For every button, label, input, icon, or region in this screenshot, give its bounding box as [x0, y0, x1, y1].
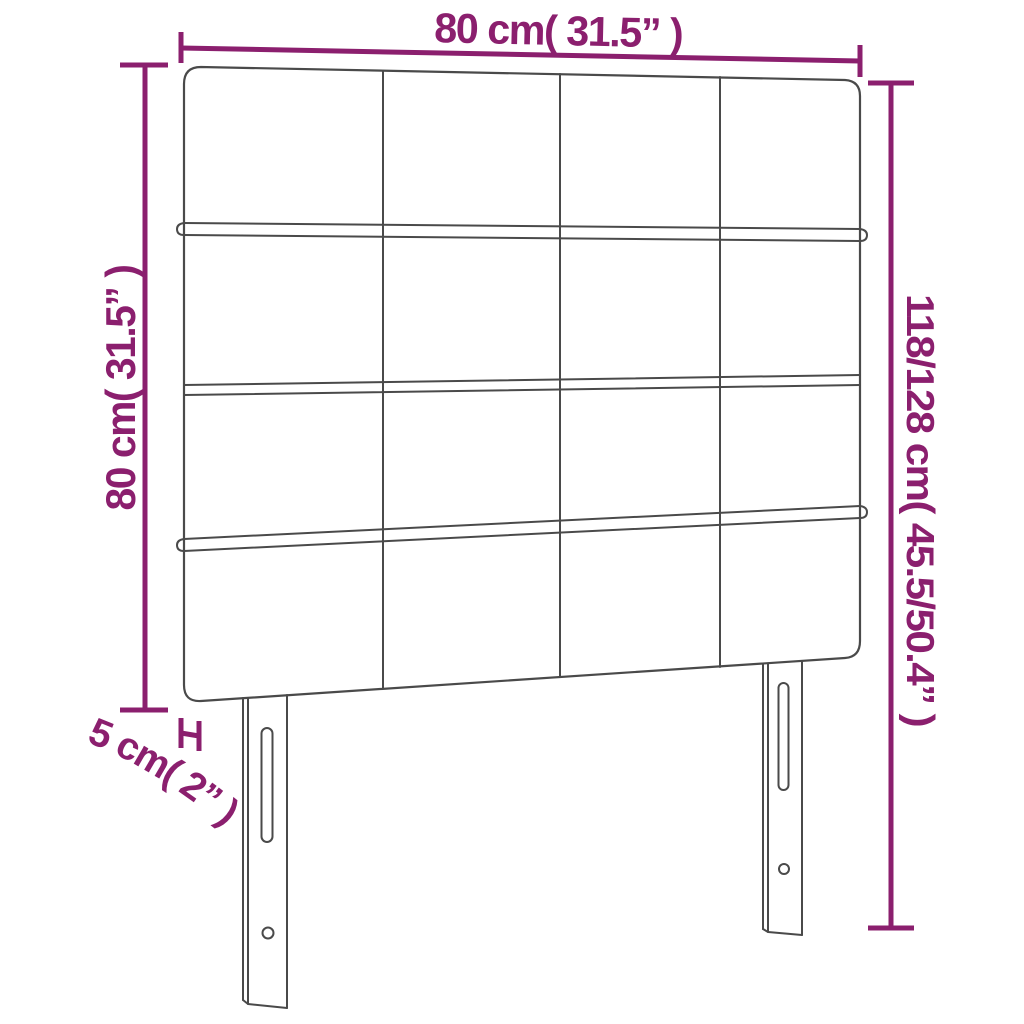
width-label: 80 cm( 31.5” ) — [434, 4, 683, 57]
headboard-height-label: 80 cm( 31.5” ) — [97, 266, 144, 511]
left-leg — [243, 695, 287, 1008]
left-leg-screw-hole — [263, 928, 274, 939]
dimension-labels: 80 cm( 31.5” ) 80 cm( 31.5” ) 118/128 cm… — [83, 4, 941, 848]
dimension-lines — [120, 32, 914, 928]
legs — [243, 662, 802, 1008]
row-seam-2-bottom — [184, 385, 860, 395]
thickness-label: 5 cm( 2” ) — [83, 710, 247, 833]
right-leg — [763, 662, 802, 935]
headboard — [177, 67, 867, 701]
diagram-canvas: 80 cm( 31.5” ) 80 cm( 31.5” ) 118/128 cm… — [0, 0, 1024, 1024]
left-leg-bottom-edge — [243, 1000, 287, 1008]
thickness-bracket — [181, 718, 199, 751]
right-leg-slot — [779, 683, 789, 790]
row-seam-1-bottom — [184, 235, 860, 241]
total-height-label: 118/128 cm( 45.5/50.4” ) — [898, 294, 941, 727]
right-leg-screw-hole — [779, 864, 789, 874]
headboard-dimension-diagram: 80 cm( 31.5” ) 80 cm( 31.5” ) 118/128 cm… — [0, 0, 1024, 1024]
horizontal-seams — [184, 223, 860, 551]
row-seam-1-top — [184, 223, 860, 229]
thickness-bracket-crossbar — [181, 733, 199, 736]
left-leg-slot — [262, 728, 273, 842]
row-seam-2-top — [184, 375, 860, 385]
